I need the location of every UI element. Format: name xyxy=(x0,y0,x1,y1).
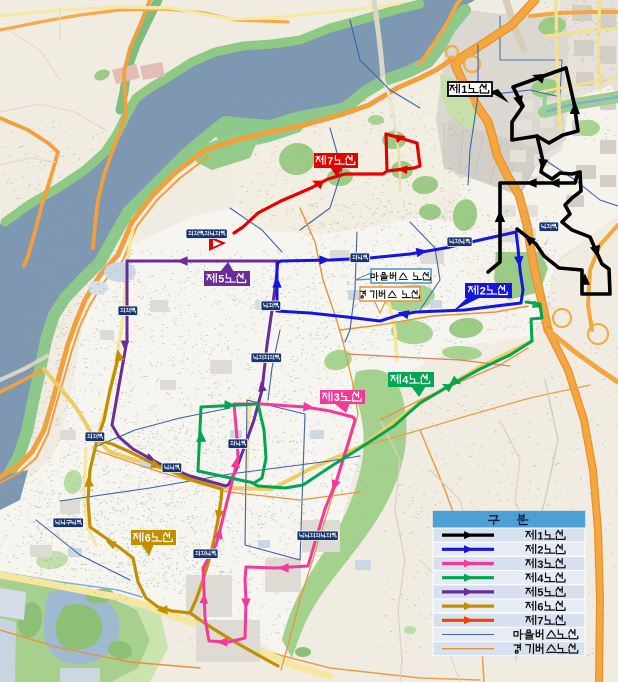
svg-text:7: 7 xyxy=(327,156,333,168)
svg-text:4: 4 xyxy=(402,375,408,387)
svg-text:3: 3 xyxy=(334,392,340,404)
svg-text:1: 1 xyxy=(461,84,467,96)
svg-text:6: 6 xyxy=(537,601,543,613)
svg-text:4: 4 xyxy=(537,573,544,585)
svg-text:6: 6 xyxy=(145,533,151,545)
svg-text:3: 3 xyxy=(537,559,543,571)
svg-text:1: 1 xyxy=(537,530,543,542)
svg-text:2: 2 xyxy=(480,286,486,298)
svg-text:7: 7 xyxy=(537,616,543,628)
svg-text:2: 2 xyxy=(537,545,543,557)
svg-text:5: 5 xyxy=(218,274,224,286)
svg-text:5: 5 xyxy=(537,587,543,599)
